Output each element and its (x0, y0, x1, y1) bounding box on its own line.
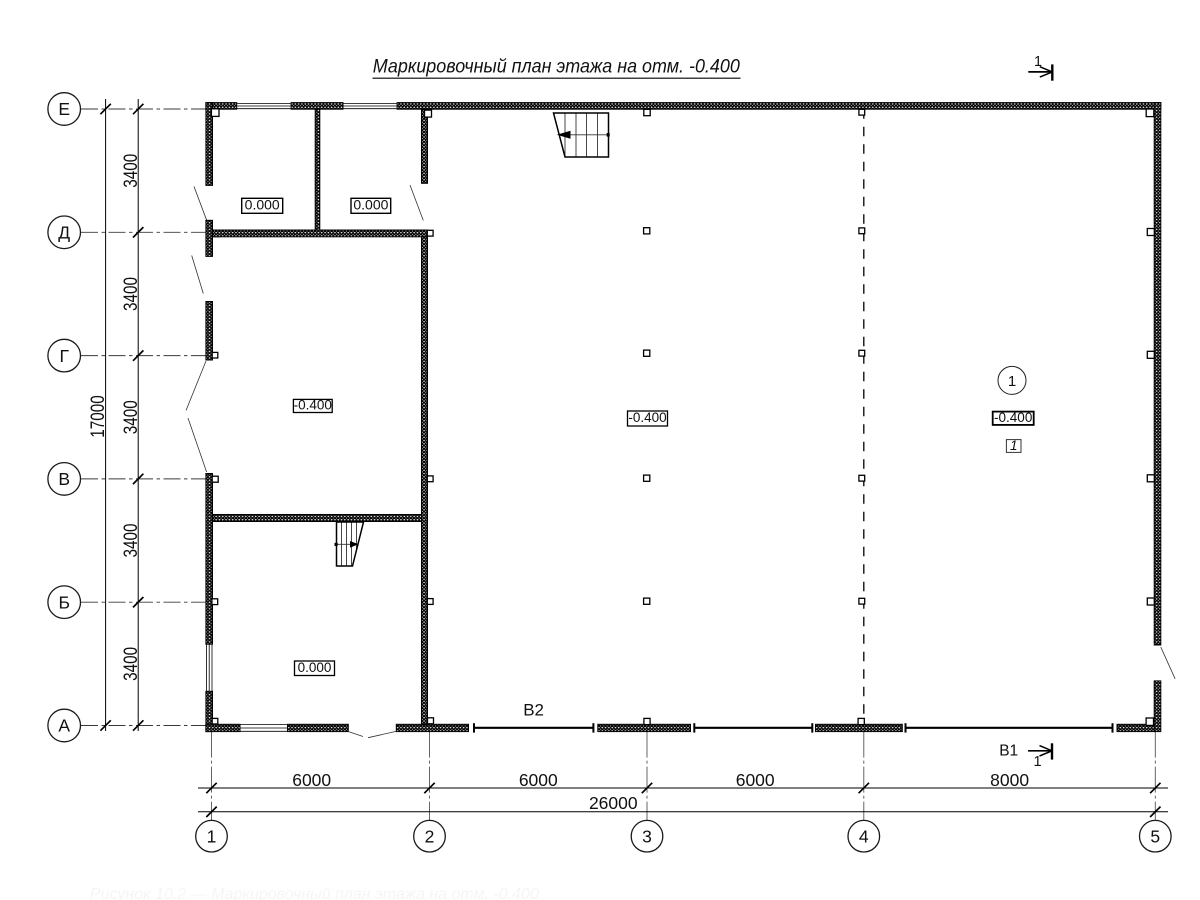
svg-text:3: 3 (642, 826, 652, 846)
svg-text:0.000: 0.000 (298, 660, 332, 675)
svg-text:-0.400: -0.400 (994, 410, 1032, 425)
svg-text:-0.400: -0.400 (294, 398, 332, 413)
svg-text:1: 1 (1033, 754, 1041, 770)
svg-text:26000: 26000 (589, 793, 638, 813)
svg-text:2: 2 (425, 826, 435, 846)
svg-text:6000: 6000 (292, 770, 331, 790)
svg-text:3400: 3400 (121, 154, 142, 188)
svg-text:В: В (58, 469, 70, 489)
svg-text:Б: Б (58, 592, 69, 612)
svg-text:3400: 3400 (121, 400, 142, 434)
svg-text:В2: В2 (523, 701, 544, 720)
svg-text:3400: 3400 (121, 277, 142, 311)
svg-text:3400: 3400 (121, 647, 142, 681)
svg-text:В1: В1 (999, 743, 1018, 760)
svg-text:Е: Е (58, 99, 70, 119)
svg-text:Рисунок 10.2 — Маркировочный п: Рисунок 10.2 — Маркировочный план этажа … (90, 886, 539, 900)
svg-text:0.000: 0.000 (245, 197, 280, 213)
svg-text:6000: 6000 (736, 770, 775, 790)
svg-text:Г: Г (59, 346, 69, 366)
svg-text:3400: 3400 (121, 524, 142, 558)
svg-text:0.000: 0.000 (353, 197, 388, 213)
svg-text:4: 4 (859, 826, 869, 846)
svg-text:1: 1 (207, 826, 217, 846)
svg-text:-0.400: -0.400 (628, 410, 666, 425)
svg-text:Маркировочный план этажа на от: Маркировочный план этажа на отм. -0.400 (373, 56, 740, 78)
svg-text:А: А (58, 716, 70, 736)
svg-text:8000: 8000 (990, 770, 1029, 790)
svg-text:1: 1 (1008, 373, 1016, 390)
svg-text:6000: 6000 (519, 770, 558, 790)
svg-text:1: 1 (1010, 438, 1018, 453)
svg-text:Д: Д (58, 223, 70, 243)
svg-text:1: 1 (1034, 54, 1042, 70)
svg-text:5: 5 (1150, 826, 1160, 846)
svg-text:17000: 17000 (88, 395, 109, 438)
